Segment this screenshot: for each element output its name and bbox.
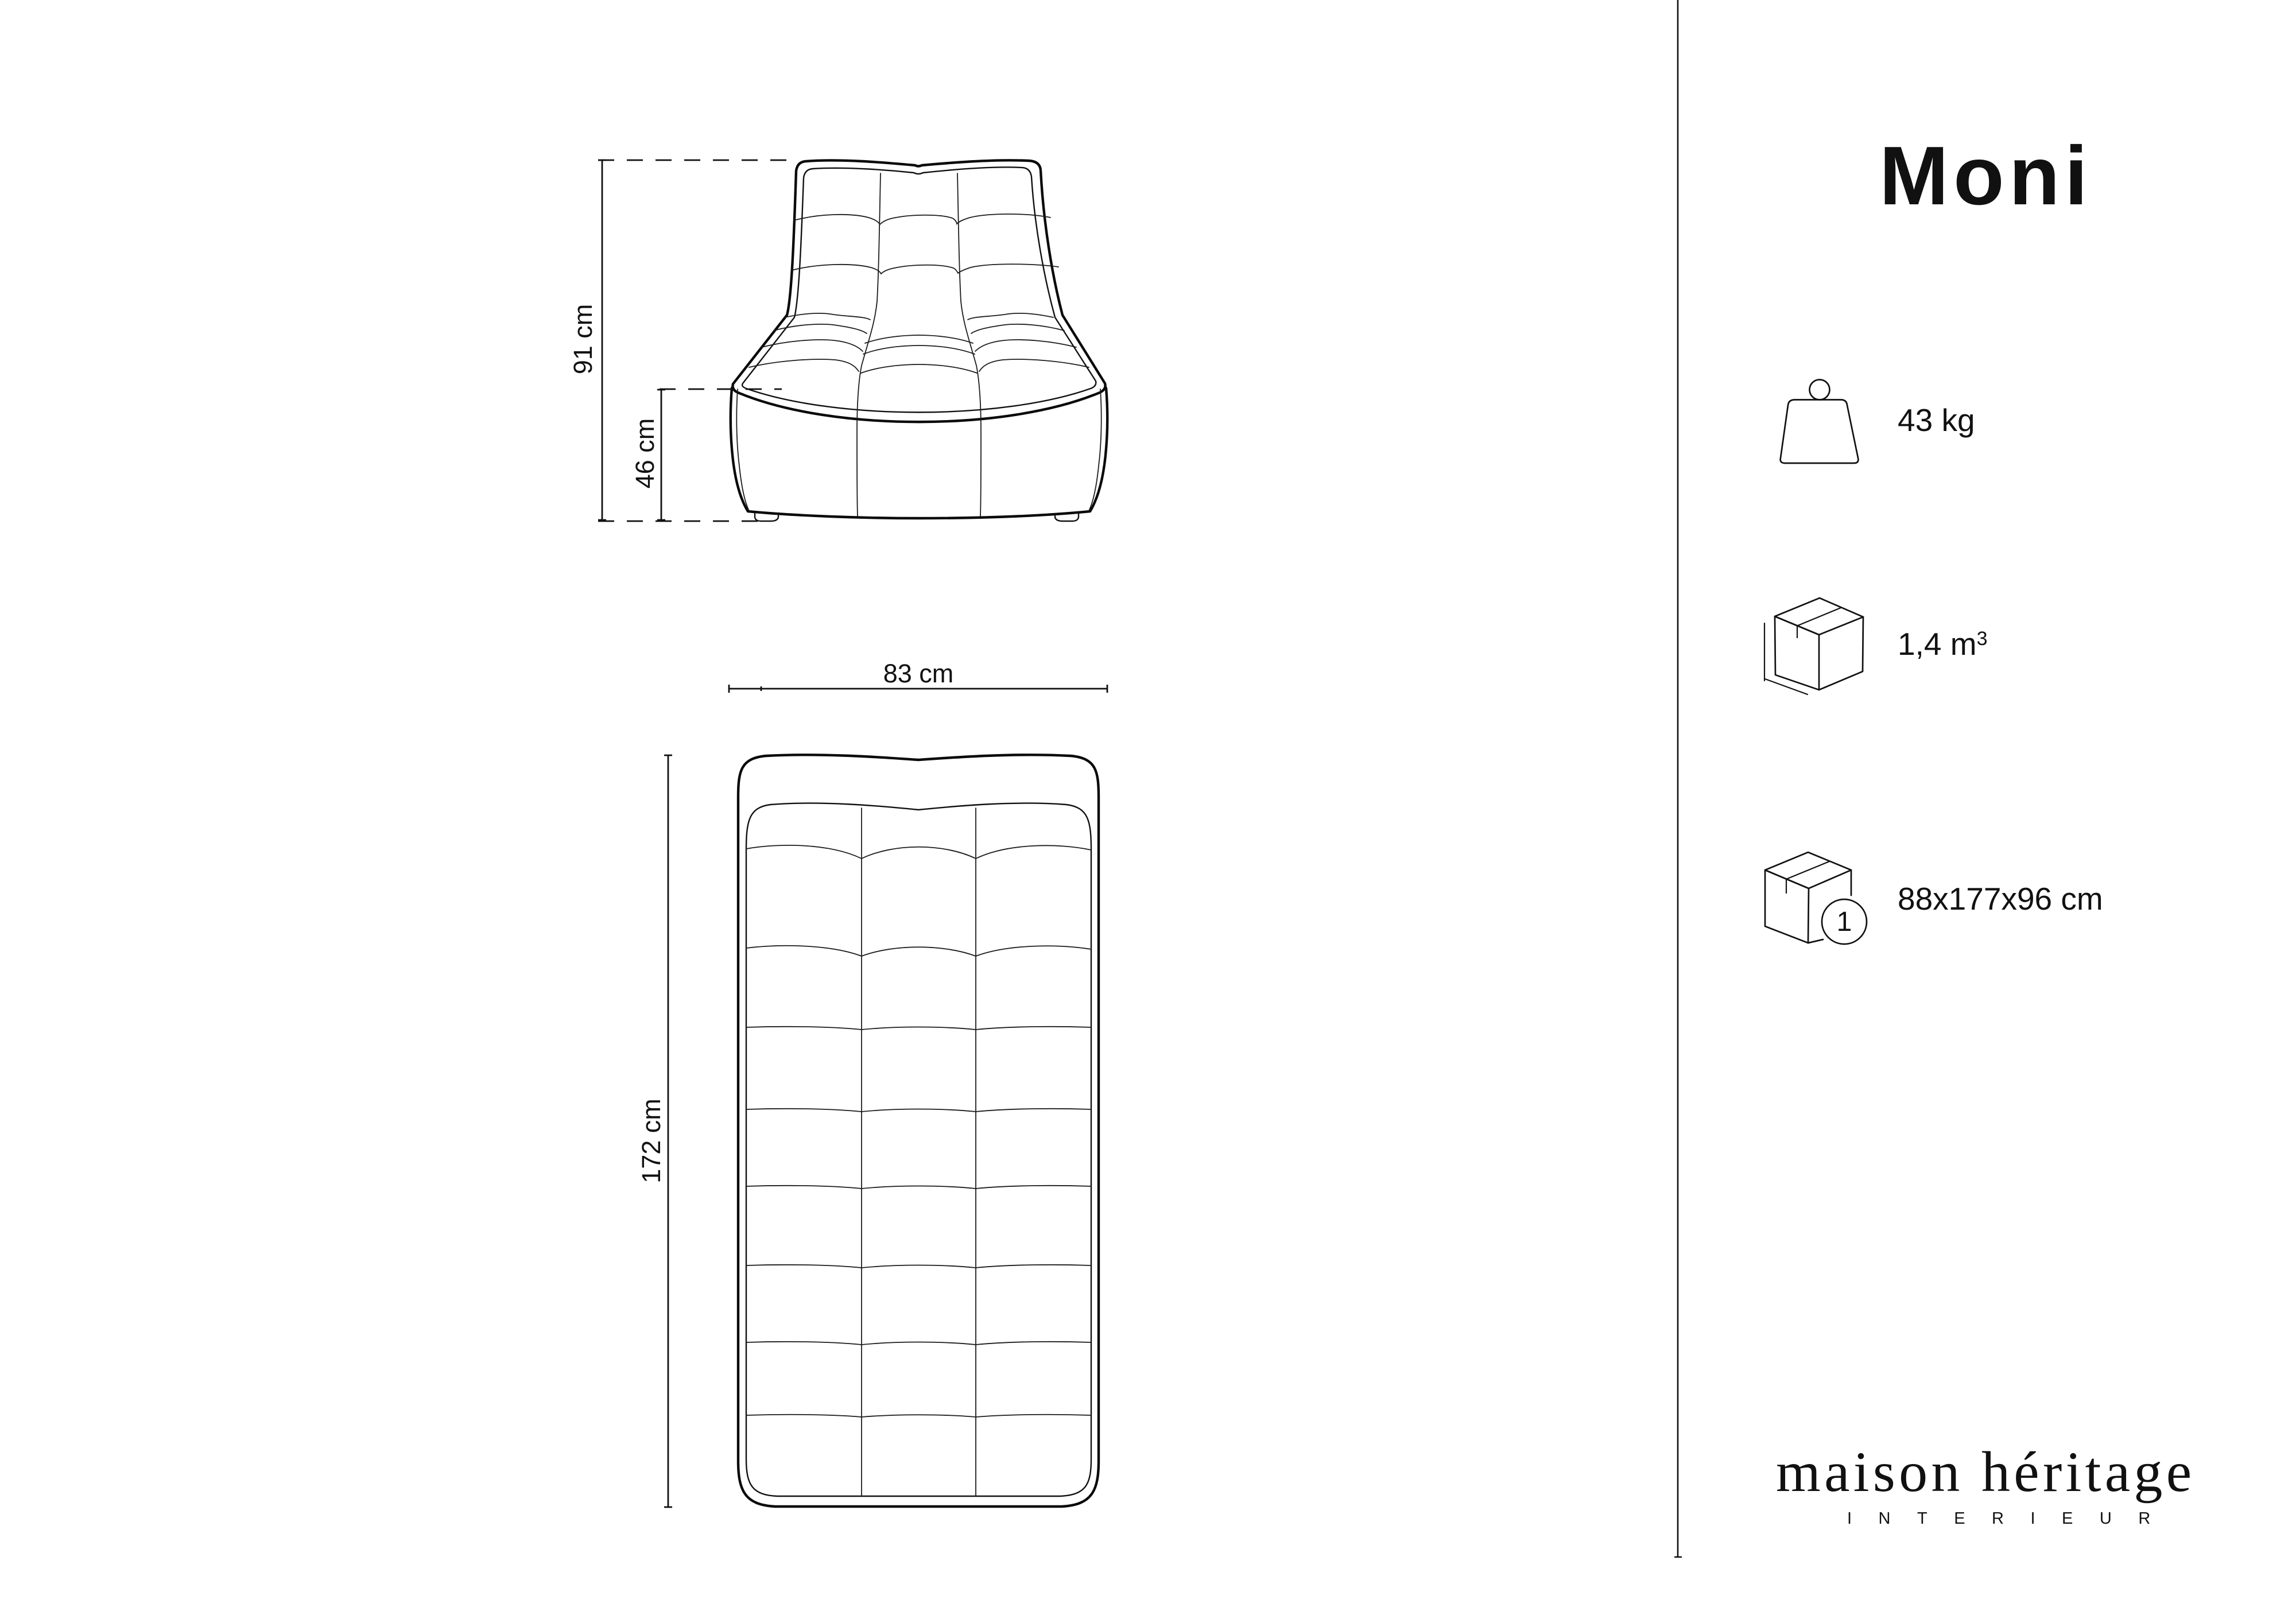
svg-text:88x177x96 cm: 88x177x96 cm — [1898, 881, 2103, 917]
svg-text:83 cm: 83 cm — [883, 659, 954, 688]
svg-text:46 cm: 46 cm — [630, 418, 660, 489]
svg-text:172 cm: 172 cm — [637, 1098, 666, 1183]
svg-text:1,4 m3: 1,4 m3 — [1898, 626, 1987, 662]
svg-text:Moni: Moni — [1879, 129, 2092, 222]
svg-text:maison héritage: maison héritage — [1776, 1440, 2195, 1504]
svg-text:1: 1 — [1837, 907, 1852, 937]
svg-text:INTERIEUR: INTERIEUR — [1847, 1509, 2177, 1528]
svg-text:43 kg: 43 kg — [1898, 402, 1975, 438]
svg-text:91 cm: 91 cm — [568, 304, 598, 375]
